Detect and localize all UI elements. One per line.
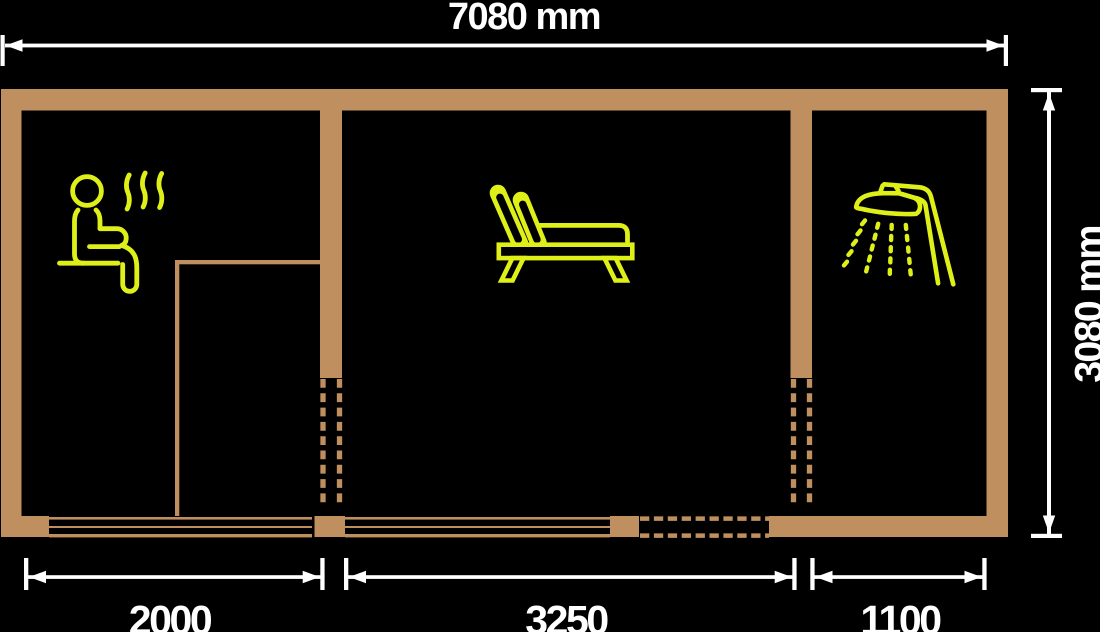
svg-text:1100: 1100 (860, 597, 941, 632)
svg-text:7080 mm: 7080 mm (448, 0, 600, 38)
svg-text:3250: 3250 (525, 597, 608, 632)
svg-text:3080 mm: 3080 mm (1068, 226, 1100, 383)
svg-text:2000: 2000 (129, 597, 212, 632)
